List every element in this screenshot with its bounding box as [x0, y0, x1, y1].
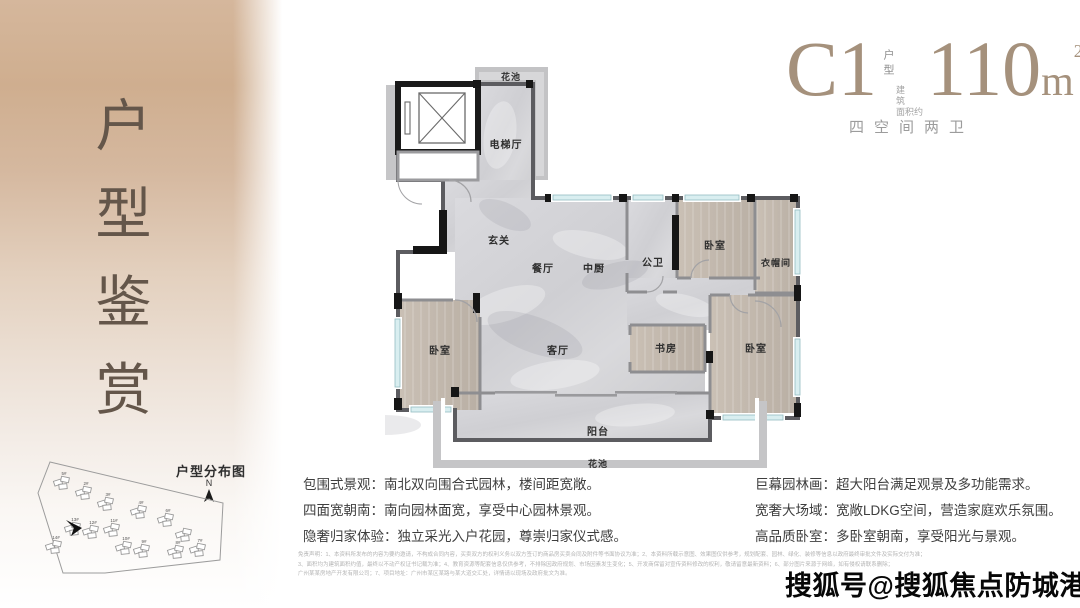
feature-line: 宽奢大场域：宽敞LDKG空间，营造家庭欢乐氛围。 [755, 498, 1062, 524]
feature-line: 四面宽朝南：南向园林面宽，享受中心园林景观。 [303, 498, 627, 524]
room-label-foyer: 玄关 [488, 234, 510, 247]
building-label: 6# [165, 508, 171, 513]
room-label-living: 客厅 [546, 344, 569, 357]
building-label: 12# [89, 520, 97, 525]
room-label-bedroom-se: 卧室 [745, 342, 767, 355]
room-label-elevator-hall: 电梯厅 [490, 138, 523, 151]
building-label: 5# [61, 471, 67, 476]
room-label-flower-bed-bottom: 花池 [588, 458, 608, 469]
page-title-vertical: 户型鉴赏 [90, 96, 146, 448]
elevator-shaft [398, 84, 478, 152]
room-label-bedroom-w: 卧室 [429, 344, 451, 357]
room-label-flower-bed-top: 花池 [501, 71, 521, 82]
building-label: 13# [71, 517, 79, 522]
layout-subtitle: 四空间两卫 [849, 116, 974, 137]
feature-line: 包围式景观：南北双向围合式园林，楼间距宽敞。 [303, 472, 627, 498]
room-label-kitchen: 中厨 [583, 262, 605, 275]
feature-list-right: 巨幕园林画：超大阳台满足观景及多功能需求。 宽奢大场域：宽敞LDKG空间，营造家… [755, 472, 1062, 550]
building-label: 3# [105, 492, 111, 497]
area-unit: m [1041, 59, 1074, 105]
sohu-watermark: 搜狐号@搜狐焦点防城港站 [785, 564, 1080, 603]
feature-line: 高品质卧室：多卧室朝南，享受阳光与景观。 [755, 524, 1062, 550]
room-label-dining: 餐厅 [531, 262, 554, 275]
site-map: 5# 2# 3# 4# 6# 7# 8# 9# 10# 11# 12# 13# … [28, 448, 243, 580]
area-value: 110 [927, 25, 1041, 112]
stair-vestibule [398, 152, 478, 180]
room-label-closet: 衣帽间 [761, 257, 791, 268]
room-label-bedroom-ne: 卧室 [704, 239, 726, 252]
building-label: 11# [110, 518, 118, 523]
feature-line: 隐奢归家体验：独立采光入户花园，尊崇归家仪式感。 [303, 524, 627, 550]
building-label: 7# [197, 538, 203, 543]
feature-list-left: 包围式景观：南北双向围合式园林，楼间距宽敞。 四面宽朝南：南向园林面宽，享受中心… [303, 472, 627, 550]
room-label-study: 书房 [655, 342, 677, 355]
site-map-buildings: 5# 2# 3# 4# 6# 7# 8# 9# 10# 11# 12# 13# … [45, 471, 205, 558]
disclaimer-line: 免责声明：1、本资料所发布的内容为要约邀请，不构成合同内容，买卖双方的权利义务以… [298, 551, 1080, 561]
feature-line: 巨幕园林画：超大阳台满足观景及多功能需求。 [755, 472, 1062, 498]
building-label: 2# [83, 481, 89, 486]
unit-type-label: 户型 [880, 49, 896, 79]
building-label: 10# [122, 536, 130, 541]
area-value-group: 110m2 [927, 30, 1080, 108]
building-label: 14# [52, 535, 60, 540]
room-label-bath: 公卫 [642, 257, 664, 269]
building-label: 4# [138, 500, 144, 505]
room-label-balcony: 阳台 [587, 425, 609, 438]
building-label: 9# [141, 539, 147, 544]
area-superscript: 2 [1074, 41, 1080, 61]
floor-plan: 花池 电梯厅 玄关 餐厅 中厨 公卫 卧室 衣帽间 客厅 书房 卧室 卧室 阳台… [385, 55, 815, 485]
building-label: 8# [175, 540, 181, 545]
